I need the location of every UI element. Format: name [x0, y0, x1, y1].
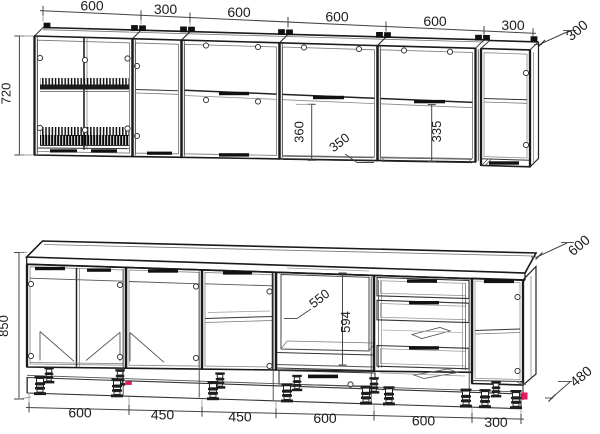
svg-text:600: 600 [565, 231, 593, 258]
svg-text:300: 300 [501, 17, 525, 33]
svg-text:850: 850 [0, 315, 11, 337]
svg-text:600: 600 [325, 9, 349, 25]
svg-text:600: 600 [412, 413, 436, 429]
svg-text:594: 594 [338, 311, 353, 333]
svg-text:600: 600 [423, 13, 447, 29]
svg-text:300: 300 [563, 16, 591, 43]
svg-text:335: 335 [429, 121, 444, 143]
svg-text:450: 450 [228, 408, 252, 424]
svg-text:450: 450 [151, 407, 175, 423]
svg-text:360: 360 [292, 121, 307, 143]
svg-text:600: 600 [68, 405, 92, 421]
svg-text:600: 600 [313, 410, 337, 426]
svg-text:300: 300 [484, 414, 508, 430]
svg-text:600: 600 [80, 0, 104, 14]
svg-text:480: 480 [567, 362, 595, 389]
svg-text:300: 300 [154, 1, 178, 17]
svg-text:550: 550 [306, 286, 332, 311]
svg-text:600: 600 [227, 4, 251, 20]
svg-text:720: 720 [0, 83, 14, 105]
svg-text:350: 350 [326, 130, 352, 155]
